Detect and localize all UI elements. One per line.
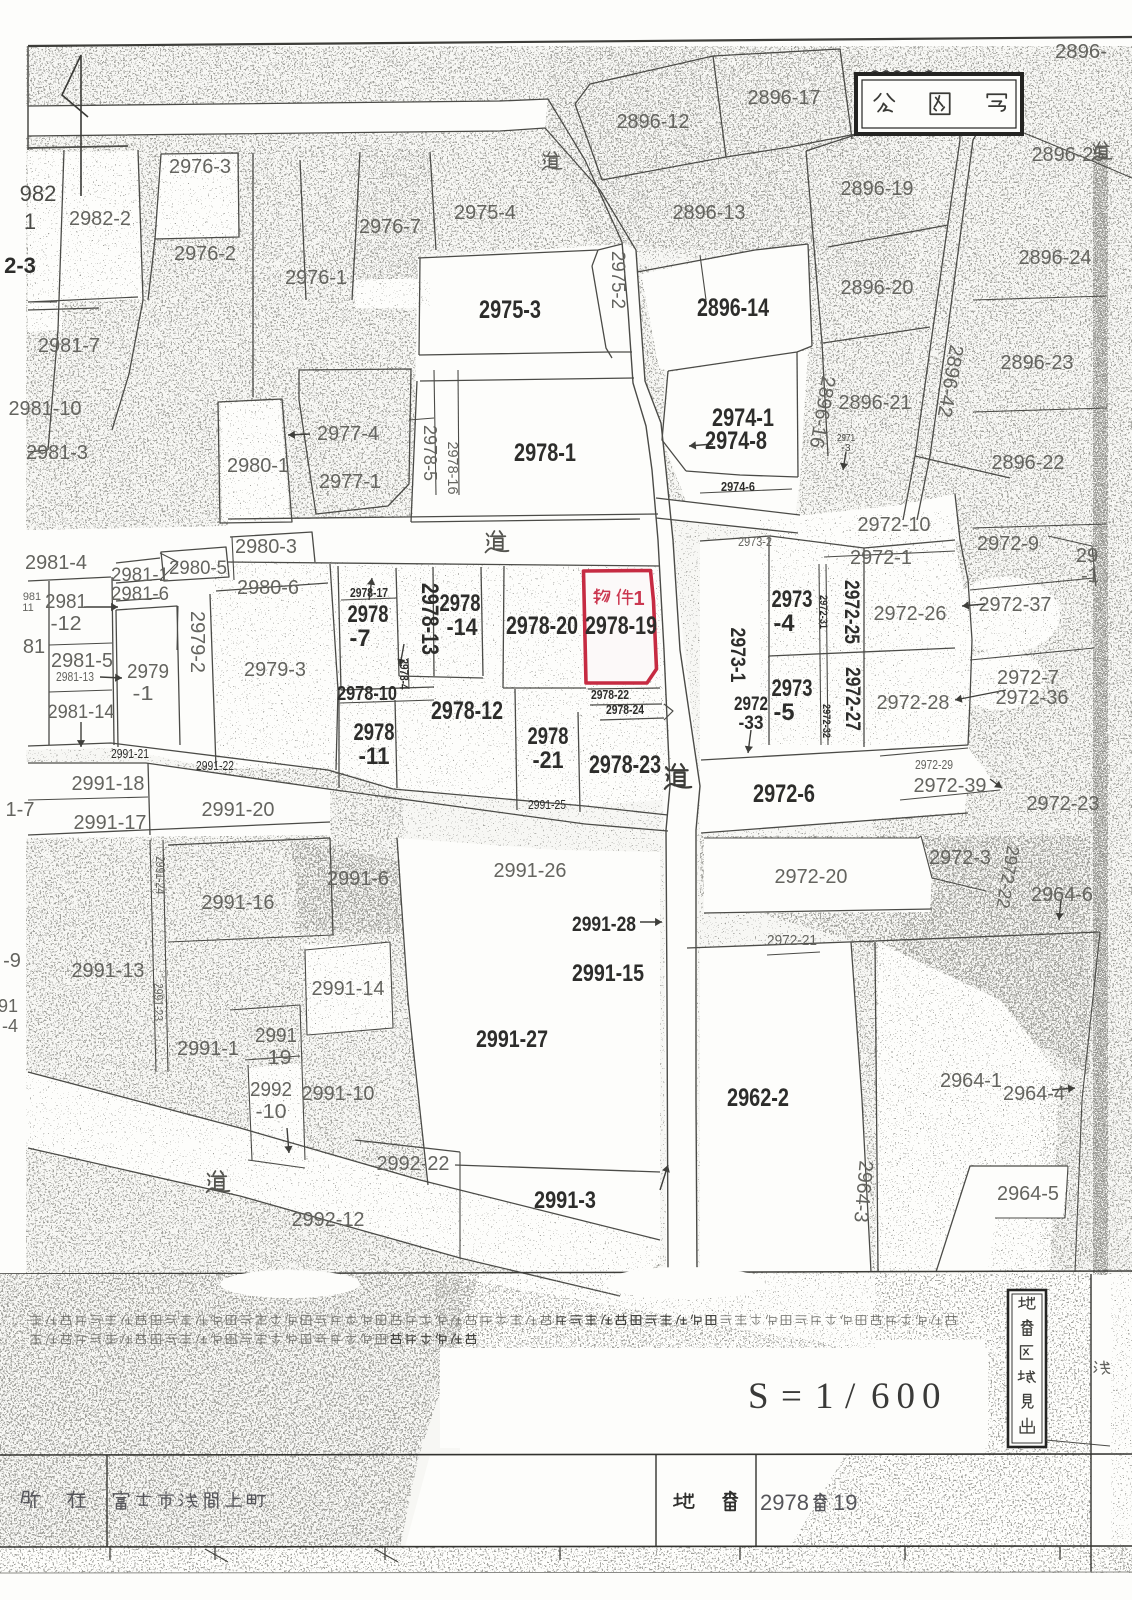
svg-text:81: 81 [23,636,45,658]
svg-text:2978-12: 2978-12 [431,697,503,725]
svg-text:2980-6: 2980-6 [237,577,299,599]
svg-text:2972-1: 2972-1 [850,547,912,569]
svg-text:-10: -10 [256,1101,287,1123]
svg-text:2972-36: 2972-36 [996,687,1069,709]
svg-text:2896-25: 2896-25 [1032,144,1105,166]
svg-text:2979-3: 2979-3 [244,659,306,681]
svg-text:2896-17: 2896-17 [748,87,821,109]
svg-text:2991-13: 2991-13 [72,960,145,982]
svg-text:11: 11 [22,602,33,614]
svg-text:2978-23: 2978-23 [589,751,661,779]
svg-text:2991-6: 2991-6 [327,868,389,890]
svg-text:2991-28: 2991-28 [572,913,636,936]
svg-text:2972-29: 2972-29 [915,758,953,772]
svg-text:2896-19: 2896-19 [841,178,914,200]
svg-text:2981-3: 2981-3 [26,442,88,464]
svg-text:-1: -1 [1081,565,1099,587]
svg-text:2-3: 2-3 [4,253,36,278]
svg-text:2978-10: 2978-10 [337,683,397,705]
svg-text:2978-19: 2978-19 [585,612,657,640]
svg-text:2976-7: 2976-7 [359,216,421,238]
svg-text:2972-39: 2972-39 [914,775,987,797]
svg-text:2896-23: 2896-23 [1001,352,1074,374]
svg-text:2896-21: 2896-21 [839,392,912,414]
svg-text:2973-2: 2973-2 [738,534,772,549]
svg-text:2980-3: 2980-3 [235,536,297,558]
svg-text:2972-21: 2972-21 [767,932,817,949]
svg-text:2991-1: 2991-1 [177,1038,239,1060]
svg-text:2977-4: 2977-4 [317,423,379,445]
svg-text:2972-26: 2972-26 [874,603,947,625]
svg-text:=: = [781,1376,802,1417]
svg-text:19: 19 [833,1490,857,1515]
svg-text:2977-1: 2977-1 [319,471,381,493]
svg-text:2981-7: 2981-7 [38,335,100,357]
svg-text:2991-16: 2991-16 [202,892,275,914]
svg-text:2972: 2972 [734,694,768,715]
svg-text:2992: 2992 [250,1079,292,1101]
svg-text:2981-5: 2981-5 [51,650,113,672]
svg-text:2896-14: 2896-14 [697,294,769,322]
svg-text:2991-10: 2991-10 [302,1083,375,1105]
svg-text:29: 29 [1076,545,1098,567]
svg-text:2981-14: 2981-14 [48,702,115,723]
svg-text:2978-5: 2978-5 [420,425,440,481]
svg-text:2964-4: 2964-4 [1003,1083,1065,1105]
svg-text:2979: 2979 [127,661,169,683]
svg-text:2992-12: 2992-12 [292,1209,365,1231]
svg-text:2991-22: 2991-22 [196,759,234,773]
svg-text:-5: -5 [774,699,795,726]
svg-text:2973: 2973 [772,586,813,613]
svg-text:-9: -9 [3,950,21,972]
svg-text:-7: -7 [350,625,371,652]
svg-text:2981-1: 2981-1 [111,565,169,586]
svg-text:2981-10: 2981-10 [9,398,82,420]
svg-text:1: 1 [633,588,644,610]
svg-text:2980-5: 2980-5 [169,558,227,579]
svg-text:2896-22: 2896-22 [992,452,1065,474]
svg-text:2896-: 2896- [1055,41,1107,63]
svg-text:-3: -3 [842,443,851,454]
svg-text:2973: 2973 [772,675,813,702]
svg-text:-4: -4 [2,1016,18,1036]
svg-text:2991-25: 2991-25 [528,798,566,812]
svg-text:1-7: 1-7 [6,799,35,821]
svg-text:91: 91 [0,996,18,1016]
svg-text:2896-12: 2896-12 [617,111,690,133]
svg-text:2972-9: 2972-9 [977,533,1039,555]
svg-text:2978: 2978 [348,601,389,628]
svg-text:S: S [748,1376,769,1417]
svg-text:2991-21: 2991-21 [111,747,149,761]
svg-text:1: 1 [24,209,36,234]
svg-text:2991-20: 2991-20 [202,799,275,821]
svg-text:982: 982 [20,181,57,206]
svg-text:-1: -1 [133,683,154,705]
svg-text:2979-2: 2979-2 [186,611,208,673]
svg-text:2978: 2978 [528,723,569,750]
svg-text:2972-6: 2972-6 [753,780,815,808]
svg-text:2978-20: 2978-20 [506,612,578,640]
svg-text:2896-24: 2896-24 [1019,247,1092,269]
svg-text:2975-2: 2975-2 [607,251,628,309]
svg-text:2975-3: 2975-3 [479,296,541,324]
svg-text:-11: -11 [359,743,390,770]
svg-text:2972-28: 2972-28 [877,692,950,714]
svg-text:2991-26: 2991-26 [494,860,567,882]
svg-text:2991-15: 2991-15 [572,960,644,987]
svg-text:2982-2: 2982-2 [69,208,131,230]
svg-text:2991-3: 2991-3 [534,1187,596,1214]
svg-text:2981-13: 2981-13 [56,670,94,684]
svg-text:2964-5: 2964-5 [997,1183,1059,1205]
svg-text:2981-6: 2981-6 [111,584,169,605]
svg-text:2991-24: 2991-24 [153,856,167,894]
svg-text:2991-23: 2991-23 [151,983,165,1021]
svg-text:600: 600 [871,1376,948,1417]
svg-text:2972-3: 2972-3 [929,847,991,869]
svg-text:2974-6: 2974-6 [721,479,755,494]
svg-text:-19: -19 [261,1047,292,1069]
svg-text:2991-18: 2991-18 [72,773,145,795]
svg-text:2978-22: 2978-22 [591,688,629,702]
svg-text:2978: 2978 [354,719,395,746]
svg-text:2962-2: 2962-2 [727,1084,789,1112]
svg-text:2991: 2991 [255,1025,297,1047]
svg-text:2991-27: 2991-27 [476,1026,548,1053]
svg-text:2972-37: 2972-37 [979,594,1052,616]
svg-text:2974-8: 2974-8 [705,427,767,455]
svg-text:2991-17: 2991-17 [74,812,147,834]
svg-text:2972-23: 2972-23 [1027,793,1100,815]
svg-text:2978-4: 2978-4 [397,659,411,690]
svg-text:2964-6: 2964-6 [1031,884,1093,906]
svg-text:-33: -33 [739,713,764,734]
svg-text:2964-1: 2964-1 [940,1070,1002,1092]
svg-text:2972-25: 2972-25 [840,580,863,644]
svg-text:2981: 2981 [45,591,87,613]
svg-text:2992-22: 2992-22 [377,1153,450,1175]
svg-text:2972-10: 2972-10 [858,514,931,536]
svg-text:2976-2: 2976-2 [174,243,236,265]
svg-text:2978-17: 2978-17 [350,586,388,600]
svg-text:2981-4: 2981-4 [25,552,87,574]
svg-text:2978: 2978 [440,590,481,617]
svg-text:2896-13: 2896-13 [673,202,746,224]
svg-text:2972-20: 2972-20 [775,866,848,888]
svg-text:2972-31: 2972-31 [817,595,829,629]
svg-text:2991-14: 2991-14 [312,978,385,1000]
svg-text:2972-32: 2972-32 [820,704,832,738]
svg-text:2976-3: 2976-3 [169,156,231,178]
svg-text:2972-7: 2972-7 [997,667,1059,689]
svg-text:-4: -4 [774,610,796,637]
svg-text:-21: -21 [533,747,564,774]
svg-text:-12: -12 [51,613,82,635]
svg-text:2980-1: 2980-1 [227,455,289,477]
svg-text:2972-27: 2972-27 [841,667,864,731]
svg-text:2973-1: 2973-1 [726,628,749,683]
svg-text:2975-4: 2975-4 [454,202,516,224]
svg-text:2976-1: 2976-1 [285,267,347,289]
svg-text:2978-1: 2978-1 [514,439,576,467]
svg-text:2978-24: 2978-24 [606,703,644,717]
svg-text:-14: -14 [447,614,479,641]
svg-text:2978-16: 2978-16 [444,442,461,495]
svg-text:2978: 2978 [760,1490,809,1515]
svg-text:1: 1 [815,1376,834,1417]
svg-text:/: / [845,1376,856,1417]
svg-text:2896-20: 2896-20 [841,277,914,299]
